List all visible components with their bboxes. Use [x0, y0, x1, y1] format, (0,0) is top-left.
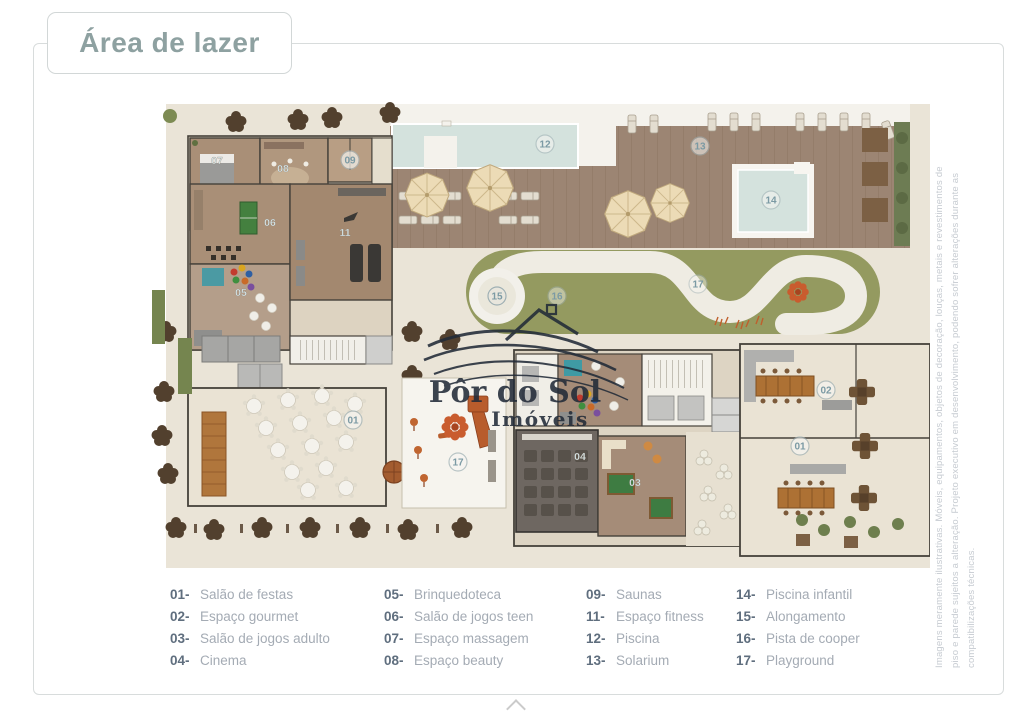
page-title: Área de lazer [79, 27, 260, 59]
games-sofa [602, 449, 611, 469]
scroll-up-caret-icon[interactable] [506, 699, 526, 713]
legend-label: Piscina infantil [766, 584, 852, 606]
marker-07: 07 [211, 155, 223, 167]
svg-text:17: 17 [452, 458, 464, 469]
legend-item: 08-Espaço beauty [384, 650, 533, 672]
svg-text:01: 01 [794, 442, 806, 453]
svg-text:14: 14 [765, 196, 777, 207]
legend-label: Espaço gourmet [200, 606, 298, 628]
marker-08: 08 [277, 163, 289, 175]
toy-cabinet [560, 412, 576, 424]
svg-text:01: 01 [347, 416, 359, 427]
lawn-flower [787, 281, 809, 303]
marker-04: 04 [574, 451, 586, 463]
legend-num: 14- [736, 584, 766, 606]
legend-item: 05-Brinquedoteca [384, 584, 533, 606]
disclaimer-text: Imagens meramente ilustrativas. Móveis, … [932, 58, 978, 668]
marker-06: 06 [264, 217, 276, 229]
badge-15: 15 [488, 287, 506, 305]
fitness-bench [296, 266, 305, 286]
stair-hatch [648, 360, 706, 388]
legend-item: 14-Piscina infantil [736, 584, 860, 606]
legend-item: 09-Saunas [586, 584, 704, 606]
disclaimer-line-2: piso e parede sujeitos a alteração. Proj… [948, 58, 964, 668]
treadmill [350, 244, 363, 282]
leisure-area-page: Área de lazer [0, 0, 1024, 713]
legend-label: Playground [766, 650, 834, 672]
svg-text:17: 17 [692, 280, 704, 291]
games-chair [653, 455, 662, 464]
legend-num: 02- [170, 606, 200, 628]
legend-label: Salão de jogos teen [414, 606, 533, 628]
room-cinema [516, 430, 598, 532]
legend-num: 13- [586, 650, 616, 672]
gourmet-table [756, 376, 814, 396]
legend-label: Espaço fitness [616, 606, 704, 628]
kids-mat [202, 268, 224, 286]
legend-label: Salão de jogos adulto [200, 628, 330, 650]
legend-num: 03- [170, 628, 200, 650]
legend-label: Alongamento [766, 606, 846, 628]
legend-label: Espaço massagem [414, 628, 529, 650]
sideboard [822, 400, 852, 410]
legend-label: Saunas [616, 584, 662, 606]
lobby [686, 432, 740, 546]
legend-item: 13-Solarium [586, 650, 704, 672]
svg-text:16: 16 [551, 292, 563, 303]
legend-column-3: 09-Saunas 11-Espaço fitness 12-Piscina 1… [586, 584, 704, 672]
teen-counter [194, 190, 203, 230]
stair-landing [648, 396, 674, 420]
badge-01-left: 01 [344, 411, 362, 429]
deck-white-gap [574, 104, 616, 166]
badge-14: 14 [762, 191, 780, 209]
beauty-counter [264, 142, 304, 149]
gray-mat [522, 366, 539, 382]
elevators [366, 336, 392, 364]
disclaimer-line-3: compatibilizações técnicas. [964, 58, 980, 668]
cinema-screen [522, 434, 592, 440]
svg-text:15: 15 [491, 292, 503, 303]
games-chair [644, 442, 653, 451]
legend-label: Salão de festas [200, 584, 293, 606]
legend-label: Solarium [616, 650, 669, 672]
legend-num: 04- [170, 650, 200, 672]
legend-item: 04-Cinema [170, 650, 330, 672]
legend-column-1: 01-Salão de festas 02-Espaço gourmet 03-… [170, 584, 330, 672]
badge-09: 09 [341, 151, 359, 169]
badge-17-lawn: 17 [689, 275, 707, 293]
floor-plan: 07 08 06 11 05 04 03 09 12 13 14 [150, 100, 930, 570]
legend-item: 07-Espaço massagem [384, 628, 533, 650]
legend-num: 07- [384, 628, 414, 650]
legend-item: 17-Playground [736, 650, 860, 672]
gourmet-counter [744, 362, 756, 402]
marker-05: 05 [235, 287, 247, 299]
pool-ladder [442, 121, 451, 126]
badge-12: 12 [536, 135, 554, 153]
svg-text:02: 02 [820, 386, 832, 397]
service-lockers [202, 336, 280, 362]
pool-notch [424, 136, 457, 168]
gray-mat [522, 390, 539, 406]
badge-02: 02 [817, 381, 835, 399]
legend-item: 02-Espaço gourmet [170, 606, 330, 628]
legend-item: 16-Pista de cooper [736, 628, 860, 650]
legend-item: 12-Piscina [586, 628, 704, 650]
legend-item: 01-Salão de festas [170, 584, 330, 606]
badge-17-playground: 17 [449, 453, 467, 471]
plant [192, 140, 198, 146]
legend-item: 03-Salão de jogos adulto [170, 628, 330, 650]
games-sofa [602, 440, 626, 449]
legend-label: Espaço beauty [414, 650, 503, 672]
badge-01-right: 01 [791, 437, 809, 455]
playground-bench [488, 460, 496, 482]
legend-label: Cinema [200, 650, 247, 672]
treadmill [368, 244, 381, 282]
disclaimer-line-1: Imagens meramente ilustrativas. Móveis, … [932, 58, 948, 668]
party-long-table [202, 412, 226, 496]
dumbbell-rack [338, 188, 386, 196]
playground-flower [442, 414, 469, 441]
legend-num: 15- [736, 606, 766, 628]
legend-num: 01- [170, 584, 200, 606]
gourmet-counter [744, 350, 794, 362]
party2-table [778, 488, 834, 508]
legend-item: 06-Salão de jogos teen [384, 606, 533, 628]
legend-item: 15-Alongamento [736, 606, 860, 628]
party2-sideboard [790, 464, 846, 474]
title-box: Área de lazer [47, 12, 292, 74]
svg-text:09: 09 [344, 156, 356, 167]
stairs-hatch [296, 340, 360, 360]
room-fitness [290, 184, 392, 300]
legend-num: 05- [384, 584, 414, 606]
marker-03: 03 [629, 477, 641, 489]
badge-13: 13 [691, 137, 709, 155]
legend-num: 12- [586, 628, 616, 650]
pool-table [650, 498, 672, 518]
legend-label: Piscina [616, 628, 660, 650]
legend-num: 17- [736, 650, 766, 672]
legend-column-4: 14-Piscina infantil 15-Alongamento 16-Pi… [736, 584, 860, 672]
legend-label: Pista de cooper [766, 628, 860, 650]
toy-mat [564, 360, 582, 376]
legend-num: 06- [384, 606, 414, 628]
legend-num: 09- [586, 584, 616, 606]
legend-item: 11-Espaço fitness [586, 606, 704, 628]
badge-16: 16 [548, 287, 566, 305]
kiddie-pool-tab [794, 162, 810, 174]
legend-num: 08- [384, 650, 414, 672]
legend-label: Brinquedoteca [414, 584, 501, 606]
svg-text:13: 13 [694, 142, 706, 153]
marker-11: 11 [339, 227, 350, 239]
stair-landing [678, 396, 704, 420]
playground-bench [488, 430, 496, 452]
legend-num: 16- [736, 628, 766, 650]
legend-column-2: 05-Brinquedoteca 06-Salão de jogos teen … [384, 584, 533, 672]
fitness-bench [296, 240, 305, 260]
svg-text:12: 12 [539, 140, 551, 151]
legend-num: 11- [586, 606, 616, 628]
